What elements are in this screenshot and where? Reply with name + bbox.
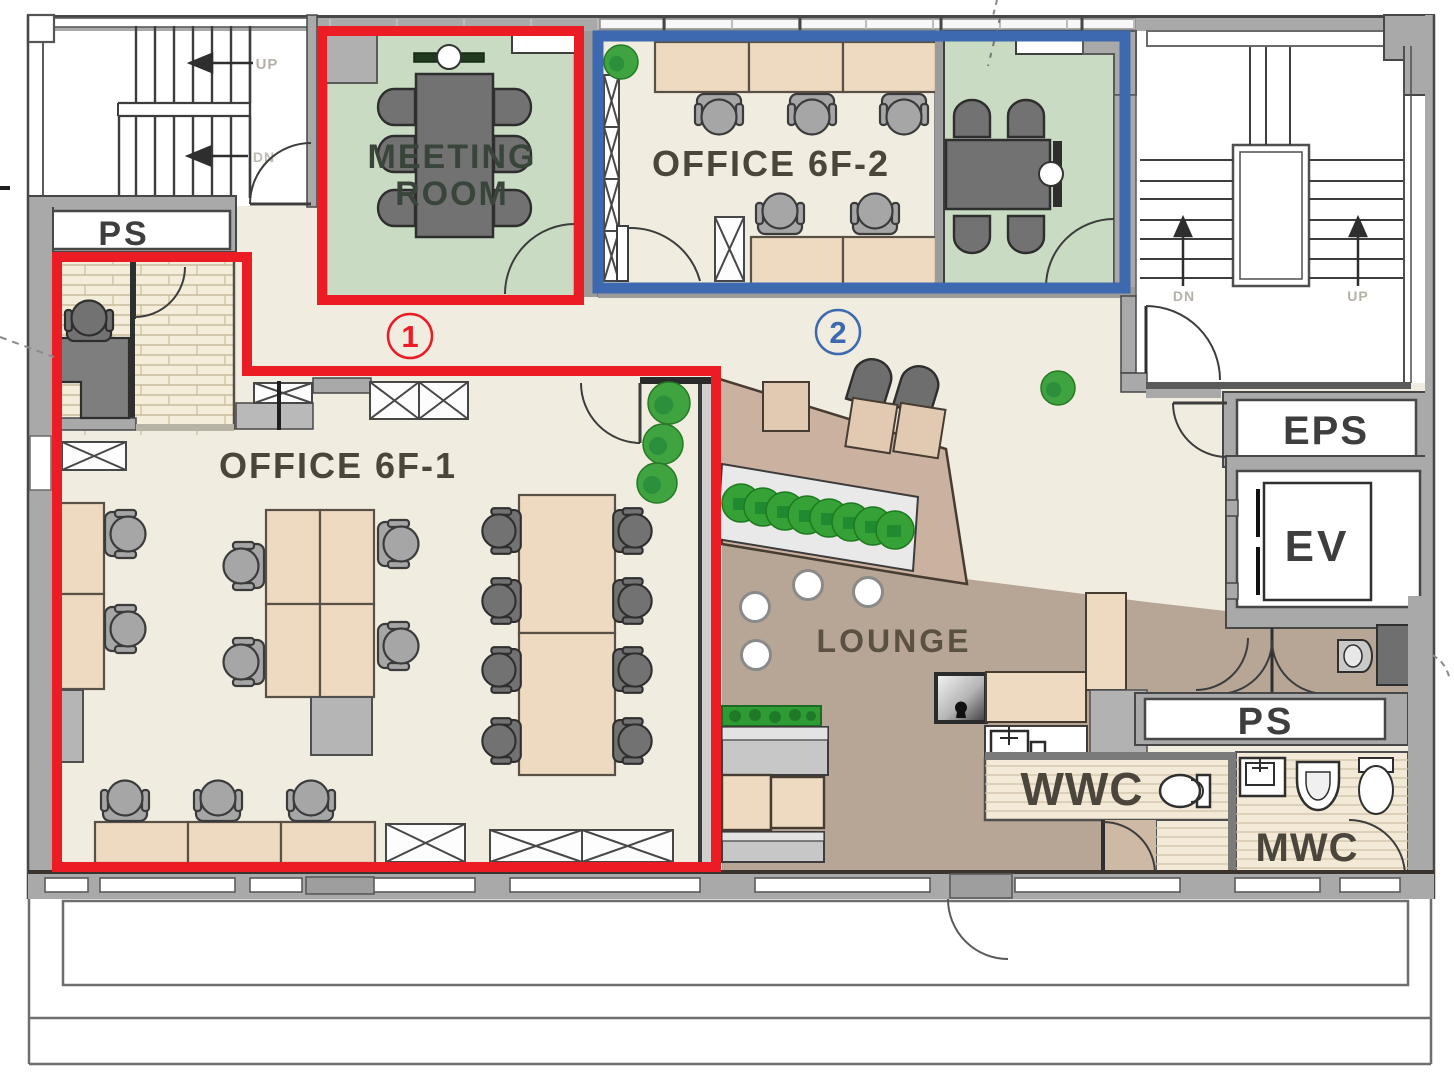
svg-text:EV: EV — [1285, 522, 1350, 571]
svg-text:LOUNGE: LOUNGE — [817, 623, 972, 659]
svg-text:2: 2 — [829, 315, 846, 350]
svg-text:WWC: WWC — [1020, 763, 1143, 815]
svg-text:UP: UP — [256, 56, 279, 73]
svg-text:PS: PS — [1238, 701, 1295, 743]
svg-text:EPS: EPS — [1283, 409, 1369, 453]
svg-text:UP: UP — [1347, 288, 1368, 304]
svg-text:MEETING: MEETING — [368, 138, 537, 176]
svg-text:OFFICE 6F-2: OFFICE 6F-2 — [652, 143, 890, 184]
svg-text:OFFICE 6F-1: OFFICE 6F-1 — [219, 445, 457, 486]
svg-text:PS: PS — [98, 215, 149, 253]
svg-text:MWC: MWC — [1256, 826, 1359, 870]
svg-text:DN: DN — [1173, 288, 1195, 304]
svg-text:1: 1 — [401, 319, 418, 354]
svg-text:ROOM: ROOM — [395, 175, 509, 213]
